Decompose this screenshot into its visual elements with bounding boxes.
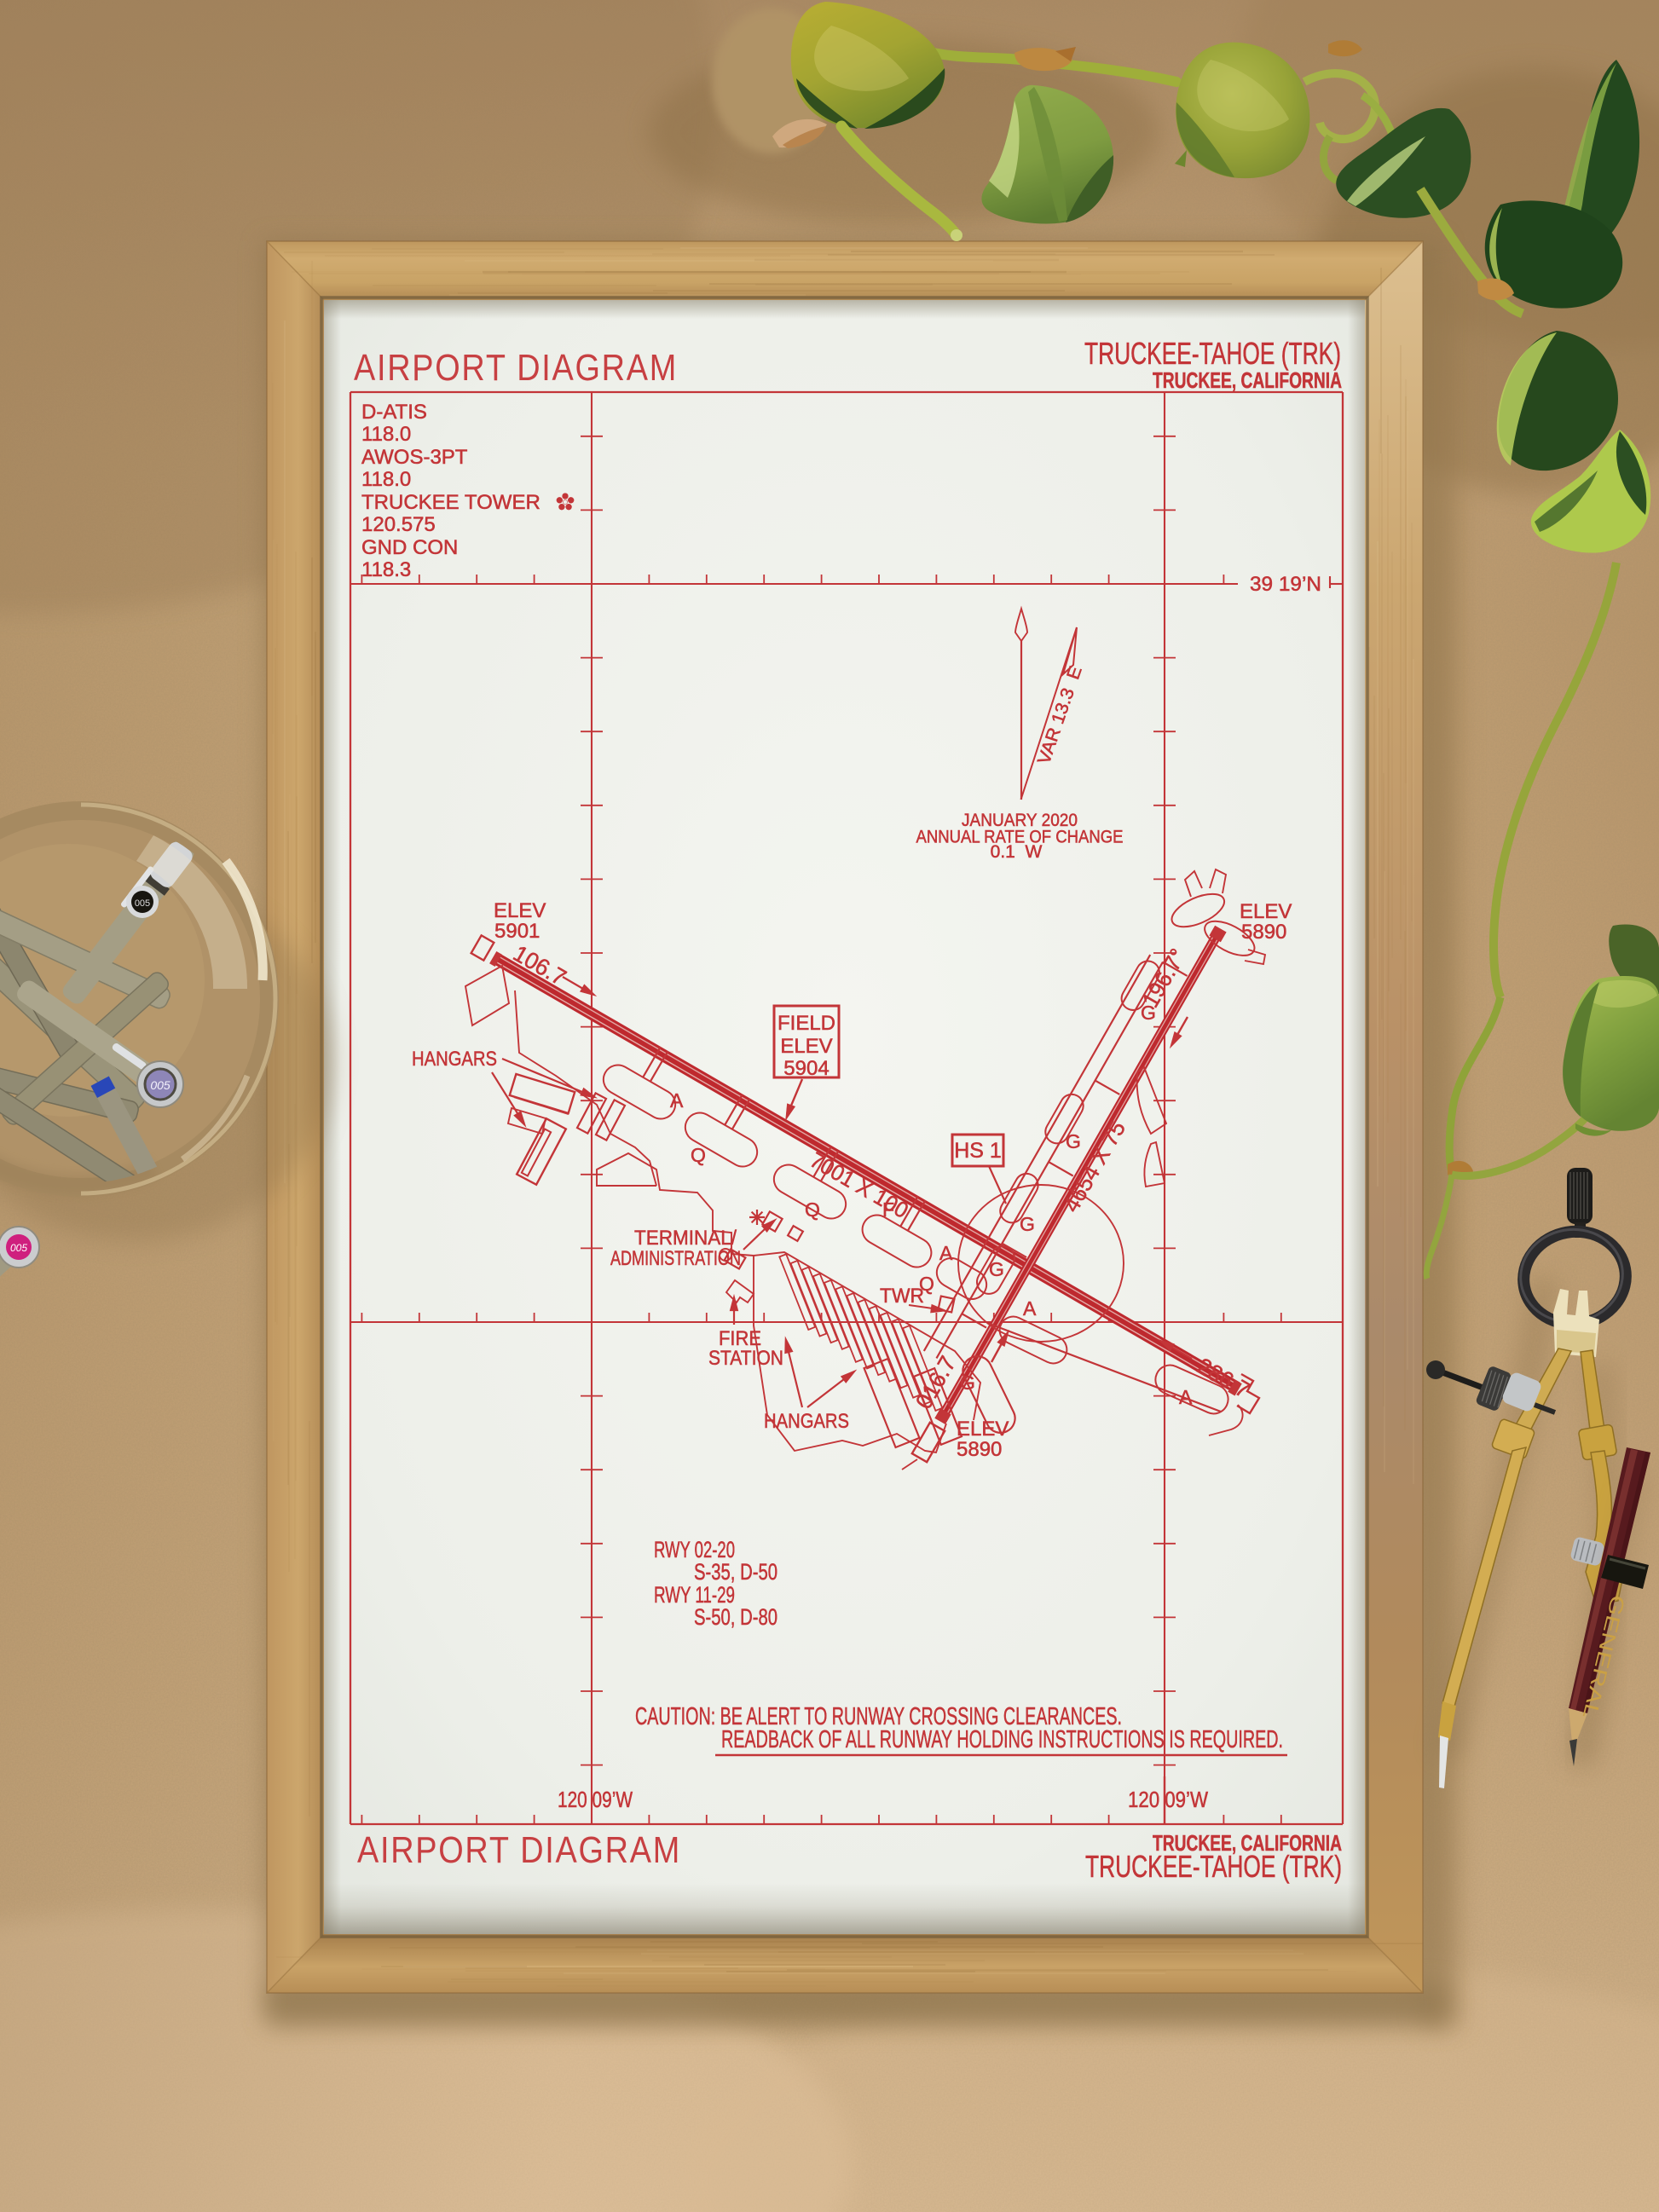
svg-text:AIRPORT DIAGRAM: AIRPORT DIAGRAM — [354, 347, 678, 389]
svg-text:AIRPORT DIAGRAM: AIRPORT DIAGRAM — [357, 1829, 681, 1871]
svg-text:READBACK OF ALL RUNWAY HOLDING: READBACK OF ALL RUNWAY HOLDING INSTRUCTI… — [721, 1726, 1283, 1753]
svg-text:TWR: TWR — [880, 1285, 924, 1308]
svg-text:TERMINAL/: TERMINAL/ — [634, 1227, 737, 1250]
svg-text:ELEV: ELEV — [1240, 900, 1292, 923]
svg-text:TRUCKEE-TAHOE (TRK): TRUCKEE-TAHOE (TRK) — [1084, 336, 1341, 371]
svg-text:0.1 W: 0.1 W — [991, 842, 1043, 862]
svg-text:118.0: 118.0 — [361, 468, 411, 491]
svg-text:Q: Q — [919, 1273, 934, 1295]
svg-text:S-35, D-50: S-35, D-50 — [694, 1559, 777, 1585]
svg-text:5901: 5901 — [494, 920, 540, 943]
svg-text:A: A — [670, 1089, 684, 1112]
svg-text:ELEV: ELEV — [957, 1418, 1009, 1441]
svg-text:ELEV: ELEV — [780, 1035, 832, 1058]
svg-text:A: A — [1179, 1386, 1193, 1408]
svg-text:TRUCKEE-TAHOE (TRK): TRUCKEE-TAHOE (TRK) — [1085, 1849, 1342, 1884]
svg-text:AWOS-3PT: AWOS-3PT — [361, 446, 468, 469]
svg-text:HANGARS: HANGARS — [412, 1048, 497, 1071]
svg-text:5904: 5904 — [783, 1057, 829, 1080]
svg-text:120 09’W: 120 09’W — [558, 1787, 633, 1812]
svg-text:D-ATIS: D-ATIS — [361, 401, 427, 424]
svg-text:G: G — [989, 1258, 1004, 1280]
svg-text:A: A — [939, 1242, 953, 1264]
svg-text:005: 005 — [150, 1078, 171, 1092]
svg-text:118.0: 118.0 — [361, 423, 411, 446]
svg-text:ADMINISTRATION: ADMINISTRATION — [610, 1247, 741, 1270]
svg-text:HANGARS: HANGARS — [764, 1410, 849, 1433]
svg-text:STATION: STATION — [708, 1347, 783, 1370]
svg-text:A: A — [1023, 1297, 1037, 1320]
svg-text:G: G — [1066, 1130, 1081, 1152]
svg-text:005: 005 — [10, 1242, 27, 1254]
svg-text:120.575: 120.575 — [361, 513, 436, 536]
svg-text:5890: 5890 — [957, 1438, 1002, 1461]
svg-text:G: G — [1141, 1002, 1156, 1024]
svg-text:39 19’N: 39 19’N — [1250, 573, 1321, 596]
svg-text:TRUCKEE, CALIFORNIA: TRUCKEE, CALIFORNIA — [1153, 367, 1342, 393]
svg-text:ELEV: ELEV — [494, 899, 546, 922]
svg-text:118.3: 118.3 — [361, 558, 411, 581]
svg-text:Q: Q — [805, 1198, 820, 1221]
svg-text:G: G — [1020, 1213, 1035, 1235]
svg-text:5890: 5890 — [1241, 921, 1286, 944]
svg-text:HS 1: HS 1 — [954, 1139, 1002, 1163]
svg-text:FIELD: FIELD — [777, 1012, 835, 1035]
svg-text:F: F — [882, 1198, 894, 1221]
svg-text:GND CON: GND CON — [361, 536, 458, 559]
svg-text:120 09’W: 120 09’W — [1128, 1787, 1208, 1812]
svg-text:S-50, D-80: S-50, D-80 — [694, 1604, 777, 1630]
svg-text:005: 005 — [135, 898, 150, 909]
svg-text:G: G — [960, 1372, 975, 1394]
svg-text:Q: Q — [691, 1144, 706, 1166]
svg-text:TRUCKEE TOWER: TRUCKEE TOWER — [361, 491, 540, 514]
